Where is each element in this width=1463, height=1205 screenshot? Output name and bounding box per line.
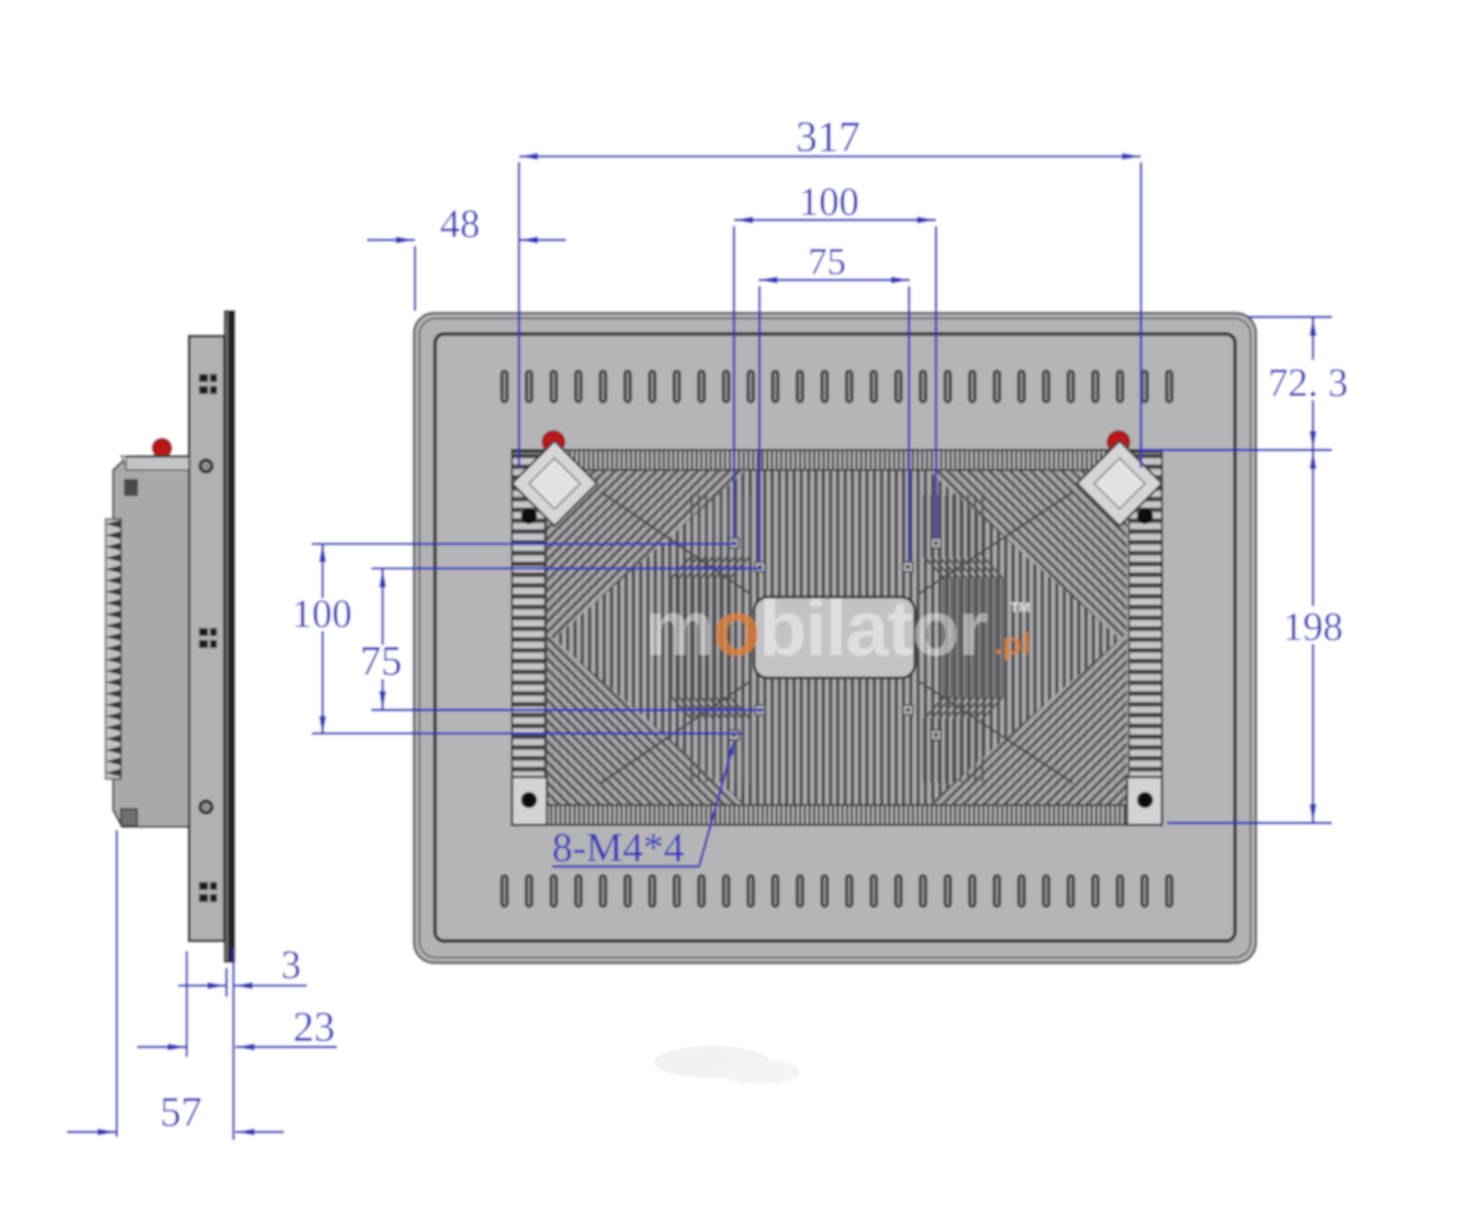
svg-text:75: 75 [360, 639, 402, 685]
svg-text:.pl: .pl [994, 626, 1030, 661]
svg-text:TM: TM [1010, 599, 1030, 615]
svg-text:317: 317 [796, 114, 861, 161]
svg-text:72. 3: 72. 3 [1268, 360, 1348, 405]
svg-text:100: 100 [292, 591, 352, 636]
svg-text:57: 57 [160, 1090, 202, 1136]
svg-text:100: 100 [799, 179, 859, 224]
svg-text:3: 3 [281, 942, 301, 987]
svg-text:198: 198 [1283, 604, 1343, 649]
svg-text:23: 23 [293, 1005, 335, 1051]
svg-text:48: 48 [440, 201, 480, 246]
svg-text:75: 75 [808, 241, 846, 283]
svg-text:8-M4*4: 8-M4*4 [552, 824, 684, 870]
svg-text:mobilator: mobilator [645, 584, 988, 672]
